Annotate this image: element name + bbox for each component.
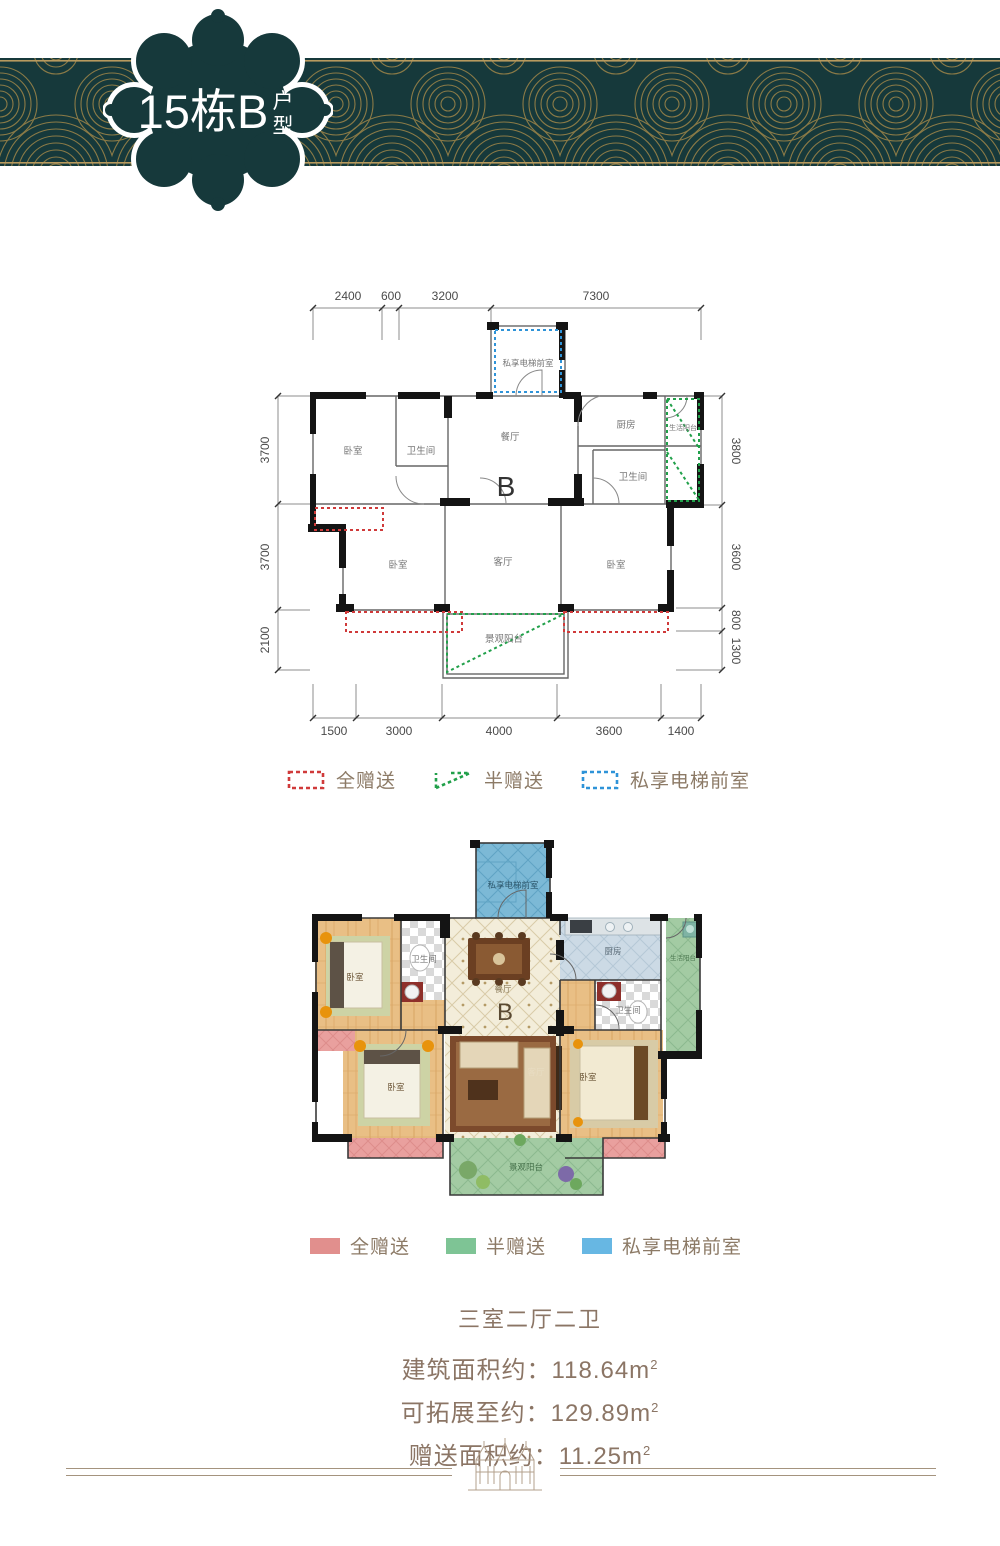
badge-suffix-2: 型 (273, 115, 294, 138)
svg-text:生活阳台: 生活阳台 (669, 423, 697, 432)
footer-rule-right (560, 1468, 936, 1478)
cloud-badge-svg: 15栋B 户 型 (103, 6, 333, 214)
legend-solid: 全赠送 半赠送 私享电梯前室 (26, 1232, 1000, 1259)
sofa-back (460, 1042, 518, 1068)
svg-text:2100: 2100 (258, 626, 272, 653)
tv-cabinet (556, 1046, 562, 1110)
svg-text:3600: 3600 (729, 544, 743, 571)
balcony-plant-2 (558, 1166, 574, 1182)
bay-bottom-left-dashed-red (346, 612, 462, 632)
technical-floorplan: 2400 600 3200 7300 3700 3700 2100 3800 3… (248, 278, 752, 764)
title-badge: 15栋B 户 型 (103, 6, 333, 214)
bedroom3-headboard (634, 1046, 648, 1120)
svg-text:卫生间: 卫生间 (407, 445, 436, 457)
expandable-area-line: 可拓展至约：129.89m2 (30, 1389, 1000, 1432)
life-balcony-dashed-green (667, 399, 699, 501)
legend-label: 全赠送 (350, 1232, 410, 1259)
floorplan-poster: 15栋B 户 型 (0, 0, 1000, 1546)
svg-text:卧室: 卧室 (388, 559, 407, 571)
svg-text:卧室: 卧室 (346, 972, 364, 982)
svg-text:卧室: 卧室 (579, 1072, 597, 1082)
legend-label: 私享电梯前室 (622, 1232, 742, 1259)
svg-text:卧室: 卧室 (606, 559, 625, 571)
coffee-table (468, 1080, 498, 1100)
unit-layout-title: 三室二厅二卫 (30, 1302, 1000, 1334)
elevator-dashed-swatch (580, 768, 620, 792)
svg-text:卧室: 卧室 (343, 445, 362, 457)
balcony-plant-1 (459, 1161, 477, 1179)
bedroom2-pillows (364, 1050, 420, 1064)
svg-text:餐厅: 餐厅 (500, 431, 520, 443)
svg-text:卧室: 卧室 (387, 1082, 405, 1092)
svg-text:客厅: 客厅 (493, 556, 513, 568)
rendered-floorplan-svg: 私享电梯前室 卧室 卫生间 餐厅 厨房 生活阳台 卫生间 卧室 客厅 卧室 景观… (298, 840, 722, 1216)
svg-text:3000: 3000 (386, 724, 413, 738)
legend-item-elevator-lobby: 私享电梯前室 (582, 1232, 742, 1259)
dimension-ticks (275, 305, 725, 721)
svg-text:景观阳台: 景观阳台 (485, 633, 523, 645)
badge-title: 15栋B (138, 85, 269, 138)
svg-text:餐厅: 餐厅 (494, 984, 512, 994)
sofa-side (524, 1048, 550, 1118)
full-gift-dashed-swatch (286, 768, 326, 792)
svg-text:1300: 1300 (729, 638, 743, 665)
svg-text:3800: 3800 (729, 438, 743, 465)
legend-item-full-gift: 全赠送 (286, 766, 396, 793)
svg-text:景观阳台: 景观阳台 (509, 1162, 543, 1172)
svg-text:600: 600 (381, 289, 401, 303)
elevator-solid-swatch (582, 1237, 612, 1255)
bay-left (316, 1030, 355, 1051)
legend-label: 半赠送 (486, 1232, 546, 1259)
svg-text:1400: 1400 (668, 724, 695, 738)
svg-text:生活阳台: 生活阳台 (670, 953, 696, 962)
svg-text:7300: 7300 (583, 289, 610, 303)
svg-text:客厅: 客厅 (527, 1067, 545, 1077)
svg-text:2400: 2400 (335, 289, 362, 303)
svg-text:厨房: 厨房 (604, 946, 621, 956)
legend-item-elevator-lobby: 私享电梯前室 (580, 766, 750, 793)
bay-bottom-right-dashed-red (564, 612, 668, 632)
svg-text:私享电梯前室: 私享电梯前室 (487, 880, 539, 890)
legend-label: 全赠送 (336, 766, 396, 793)
room-life-balcony (666, 918, 700, 1055)
legend-item-full-gift: 全赠送 (310, 1232, 410, 1259)
plan1-walls-thin (313, 326, 701, 678)
half-gift-dashed-swatch (432, 768, 474, 792)
dimension-lines (278, 308, 722, 718)
plant-small (514, 1134, 526, 1146)
svg-text:卫生间: 卫生间 (615, 1005, 641, 1015)
svg-text:卫生间: 卫生间 (619, 471, 648, 483)
technical-floorplan-svg: 2400 600 3200 7300 3700 3700 2100 3800 3… (248, 278, 752, 764)
svg-text:3600: 3600 (596, 724, 623, 738)
svg-text:3200: 3200 (432, 289, 459, 303)
building-sketch (466, 1438, 544, 1501)
badge-suffix-1: 户 (273, 90, 294, 113)
legend-dashed: 全赠送 半赠送 私享电梯前室 (18, 766, 1000, 793)
plan1-type-letter: B (497, 471, 516, 502)
legend-label: 私享电梯前室 (630, 766, 750, 793)
svg-text:3700: 3700 (258, 436, 272, 463)
svg-text:卫生间: 卫生间 (411, 954, 437, 964)
svg-text:4000: 4000 (486, 724, 513, 738)
svg-text:3700: 3700 (258, 543, 272, 570)
plan2-type-letter: B (497, 999, 513, 1026)
footer (0, 1432, 1000, 1512)
bedroom1-headboard (330, 942, 344, 1008)
footer-rule-left (66, 1468, 452, 1478)
stove (570, 920, 592, 933)
half-gift-solid-swatch (446, 1237, 476, 1255)
svg-text:私享电梯前室: 私享电梯前室 (502, 358, 554, 368)
legend-label: 半赠送 (484, 766, 544, 793)
plan1-doors (396, 370, 687, 504)
svg-text:厨房: 厨房 (616, 419, 635, 431)
svg-text:800: 800 (729, 610, 743, 630)
full-gift-solid-swatch (310, 1237, 340, 1255)
legend-item-half-gift: 半赠送 (432, 766, 544, 793)
rendered-floorplan: 私享电梯前室 卧室 卫生间 餐厅 厨房 生活阳台 卫生间 卧室 客厅 卧室 景观… (298, 840, 722, 1216)
svg-text:1500: 1500 (321, 724, 348, 738)
bay-bottom-left (348, 1138, 443, 1158)
built-area-line: 建筑面积约：118.64m2 (30, 1346, 1000, 1389)
legend-item-half-gift: 半赠送 (446, 1232, 546, 1259)
